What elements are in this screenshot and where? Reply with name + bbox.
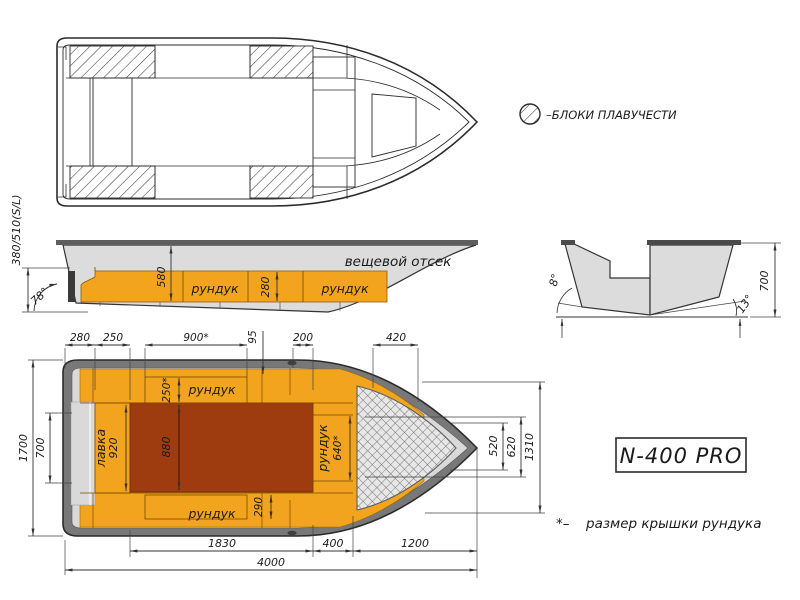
flotation-block: [250, 46, 313, 78]
dim-580: 580: [155, 267, 168, 288]
motor-mount-plate: [68, 271, 75, 302]
dim-280-side: 280: [259, 277, 272, 298]
dim-420: 420: [386, 332, 406, 344]
flotation-legend-icon: [520, 104, 540, 124]
freeboard-label: 380/510(S/L): [10, 194, 23, 265]
angle8-arc: [557, 288, 572, 313]
dim-920: 920: [107, 438, 120, 459]
transom-angle-label: 78°: [28, 285, 51, 308]
transom-strip: [71, 402, 95, 505]
gunwale-cap-right: [647, 240, 741, 245]
side-angle-label: 8°: [547, 272, 563, 287]
gunwale-bar-side: [56, 240, 478, 245]
dim-520: 520: [487, 436, 500, 457]
dim-95: 95: [247, 330, 259, 344]
legend: –БЛОКИ ПЛАВУЧЕСТИ: [520, 104, 677, 124]
dim-280-plan: 280: [70, 332, 90, 344]
mid-seat: [313, 57, 355, 187]
dim-1200: 1200: [401, 537, 429, 550]
dim-1700: 1700: [17, 434, 30, 462]
top-view: [57, 38, 477, 206]
flotation-block: [250, 166, 313, 198]
model-plate: N-400 PRO: [616, 438, 746, 472]
cross-section: 8° 13° 700: [547, 240, 781, 338]
section-left-half: [565, 244, 650, 315]
cockpit-floor: [130, 403, 313, 492]
footnote-text: размер крышки рундука: [585, 516, 761, 532]
bench-label: лавка: [93, 429, 108, 468]
boat-technical-drawing: –БЛОКИ ПЛАВУЧЕСТИ рундук рундук вещевой …: [0, 0, 800, 600]
model-name: N-400 PRO: [620, 444, 743, 468]
drawing-canvas: –БЛОКИ ПЛАВУЧЕСТИ рундук рундук вещевой …: [0, 0, 800, 600]
dim-900: 900*: [183, 332, 208, 344]
height-dim-label: 700: [758, 271, 771, 292]
deadrise-angle-label: 13°: [734, 292, 756, 315]
dim-880: 880: [160, 437, 173, 458]
dim-290: 290: [253, 497, 265, 517]
plan-view: рундук 250* 880 лавка 920 рундук 290 рун…: [17, 330, 545, 578]
flotation-block: [70, 166, 155, 198]
legend-label: –БЛОКИ ПЛАВУЧЕСТИ: [546, 108, 677, 122]
mid-seat-dividers: [313, 90, 355, 158]
side-locker-fwd-label: рундук: [320, 281, 369, 296]
locker-bow-label: рундук: [315, 424, 330, 473]
dim-250-plan: 250: [103, 332, 123, 344]
bow-deck-hatch: [372, 94, 416, 157]
transom-corner-detail: [58, 47, 66, 197]
bow-compartment-label: вещевой отсек: [345, 254, 452, 270]
locker-top-label: рундук: [187, 382, 236, 397]
locker-bottom-label: рундук: [187, 506, 236, 521]
dim-700-plan: 700: [34, 438, 47, 459]
footnote: *– размер крышки рундука: [556, 516, 761, 532]
dim-1830: 1830: [208, 537, 236, 550]
dim-4000: 4000: [257, 556, 285, 569]
dim-200: 200: [293, 332, 313, 344]
flotation-block: [70, 46, 155, 78]
dim-250s: 250*: [161, 377, 173, 402]
side-locker-aft-label: рундук: [190, 281, 239, 296]
dim-620: 620: [505, 437, 518, 458]
cleat-bottom: [288, 531, 297, 536]
cleat-top: [288, 361, 297, 366]
dim-400: 400: [323, 537, 344, 550]
gunwale-cap-left: [561, 240, 575, 245]
dim-1310: 1310: [523, 433, 536, 461]
stern-bench: [93, 78, 132, 166]
side-view: рундук рундук вещевой отсек 580 280 380/…: [10, 194, 478, 312]
footnote-marker: *–: [556, 516, 570, 532]
dim-640: 640*: [332, 435, 344, 460]
